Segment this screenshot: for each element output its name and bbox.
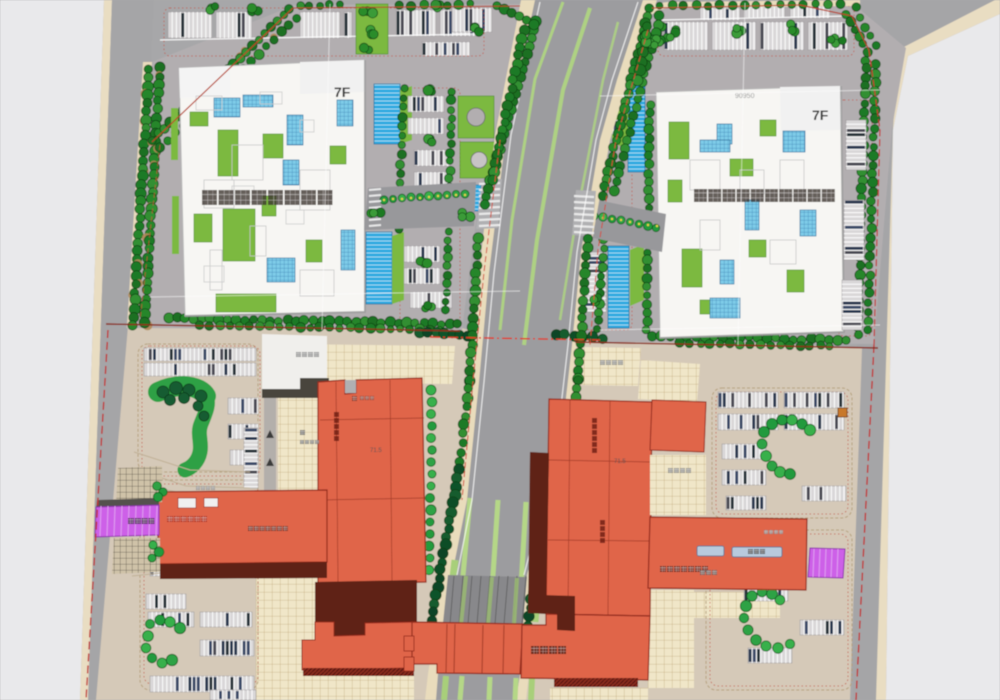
svg-text:7F: 7F [812, 107, 829, 123]
svg-text:71.5: 71.5 [370, 448, 382, 454]
svg-text:90950: 90950 [735, 93, 755, 100]
svg-text:7F: 7F [334, 84, 351, 100]
svg-text:71.5: 71.5 [614, 459, 626, 465]
